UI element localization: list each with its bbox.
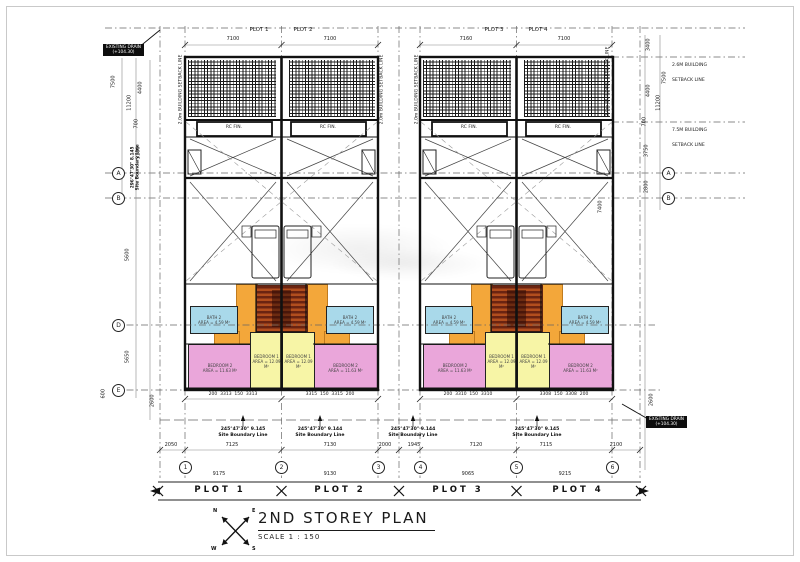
- roof-trellis-hatch: [423, 60, 511, 117]
- room-area: AREA = 11.63 M²: [563, 368, 597, 373]
- dim-left: 7500: [111, 62, 117, 102]
- grid-bubble-3: 3: [372, 461, 385, 474]
- compass-w: W: [211, 546, 217, 552]
- room-bedroom1: BEDROOM 1 AREA = 12.09 M²: [485, 332, 518, 391]
- setback-line-label-mid-right: 2.0m BUILDING SETBACK LINE: [415, 35, 420, 145]
- bubble-text: 6: [611, 464, 615, 471]
- rc-fin-label: RC FIN.: [308, 126, 348, 131]
- dim-left: 600: [101, 374, 107, 414]
- dim-left: 2600: [150, 381, 156, 421]
- grid-bubble-A-right: A: [662, 167, 675, 180]
- dim-row2: 2050: [154, 443, 188, 449]
- room-area: AREA = 11.63 M²: [203, 368, 237, 373]
- dim-left: 5650: [125, 337, 131, 377]
- room-bath2: BATH 2 AREA = 4.59 M²: [425, 306, 473, 334]
- dim-row2: 7120: [459, 443, 493, 449]
- dim-sub-plot2: 3315 150 3315 200: [282, 393, 378, 398]
- drain-label-chip: EXISTING DRAIN (+104.30): [103, 44, 144, 56]
- plot-bar-label-2: PLOT 2: [300, 485, 380, 495]
- compass-e: E: [252, 508, 255, 514]
- grid-bubble-1: 1: [179, 461, 192, 474]
- room-bedroom2: BEDROOM 2 AREA = 11.63 M²: [423, 344, 487, 391]
- bearing-plot4: 245°47'30" 9.145 Site Boundary Line: [505, 427, 569, 439]
- bearing-left-boundary: 296°47'30" 8.145 Site Boundary Line: [131, 132, 142, 202]
- compass-n: N: [213, 508, 217, 514]
- bearing-l2: Site Boundary Line: [505, 433, 569, 439]
- bubble-text: A: [666, 170, 670, 177]
- dim-right: 3400: [646, 25, 652, 65]
- bearing-plot1: 245°47'30" 9.145 Site Boundary Line: [211, 427, 275, 439]
- dim-row3: 9175: [199, 472, 239, 478]
- room-area: AREA = 4.59 M²: [569, 320, 601, 325]
- dim-row2: 7125: [215, 443, 249, 449]
- plot-bar-label-3: PLOT 3: [418, 485, 498, 495]
- plot-label-top-1: PLOT 1: [239, 27, 279, 33]
- dim-right: 3750: [644, 131, 650, 171]
- roof-trellis-hatch: [289, 60, 375, 117]
- floor-plan-sheet: BATH 2 AREA = 4.59 M² BATH 2 AREA = 4.59…: [0, 0, 800, 562]
- bearing-plot3: 245°47'30" 9.144 Site Boundary Line: [381, 427, 445, 439]
- room-bedroom1: BEDROOM 1 AREA = 12.09 M²: [517, 332, 550, 391]
- room-bath2: BATH 2 AREA = 4.59 M²: [190, 306, 238, 334]
- bubble-text: B: [666, 195, 670, 202]
- dim-top-plot2: 7100: [310, 37, 350, 43]
- grid-bubble-4: 4: [414, 461, 427, 474]
- plot-label-top-4: PLOT 4: [518, 27, 558, 33]
- bubble-text: E: [117, 387, 121, 394]
- bubble-text: A: [116, 170, 120, 177]
- dim-right: 2800: [644, 167, 650, 207]
- room-area: AREA = 4.59 M²: [198, 320, 230, 325]
- room-area: AREA = 12.09 M²: [251, 359, 282, 369]
- setback-l2: SETBACK LINE: [672, 143, 720, 148]
- bubble-text: 4: [419, 464, 423, 471]
- drawing-scale: SCALE 1 : 150: [258, 533, 320, 541]
- bubble-text: 3: [377, 464, 381, 471]
- dim-right: 7500: [662, 58, 668, 98]
- dim-row2: 7130: [313, 443, 347, 449]
- room-area: AREA = 12.09 M²: [486, 359, 517, 369]
- staircase-shadow: [272, 290, 291, 327]
- chip-line2: (+104.30): [649, 422, 684, 427]
- room-bath2: BATH 2 AREA = 4.59 M²: [326, 306, 374, 334]
- dim-right: 11200: [656, 83, 662, 123]
- dim-row2: 7115: [529, 443, 563, 449]
- bearing-l2: Site Boundary Line: [288, 433, 352, 439]
- roof-trellis-hatch: [524, 60, 610, 117]
- room-area: AREA = 4.59 M²: [334, 320, 366, 325]
- staircase-shadow: [507, 290, 526, 327]
- drawing-title: 2ND STOREY PLAN: [258, 509, 435, 531]
- rc-fin-label: RC FIN.: [214, 126, 254, 131]
- grid-bubble-B: B: [112, 192, 125, 205]
- dim-row3: 9065: [448, 472, 488, 478]
- room-area: AREA = 11.63 M²: [438, 368, 472, 373]
- bubble-text: D: [116, 322, 121, 329]
- room-bath2: BATH 2 AREA = 4.59 M²: [561, 306, 609, 334]
- bearing-l2: Site Boundary Line: [136, 132, 141, 202]
- chip-line2: (+104.30): [106, 50, 141, 55]
- setback-line-label-left: 2.0m BUILDING SETBACK LINE: [179, 35, 184, 145]
- room-bedroom2: BEDROOM 2 AREA = 11.63 M²: [313, 344, 378, 391]
- setback-line-label-right: 2.0m BUILDING SETBACK LINE: [606, 27, 611, 137]
- grid-bubble-B-right: B: [662, 192, 675, 205]
- plot-bar-label-4: PLOT 4: [538, 485, 618, 495]
- dim-top-plot1: 7100: [213, 37, 253, 43]
- setback-label-7-5m: 7.5M BUILDING SETBACK LINE: [672, 118, 720, 158]
- bubble-text: 1: [184, 464, 188, 471]
- room-area: AREA = 12.09 M²: [518, 359, 549, 369]
- setback-l2: SETBACK LINE: [672, 78, 720, 83]
- dim-left: 4400: [138, 68, 144, 108]
- room-bedroom2: BEDROOM 2 AREA = 11.63 M²: [548, 344, 613, 391]
- dim-row3: 9215: [545, 472, 585, 478]
- setback-line-label-mid-left: 2.0m BUILDING SETBACK LINE: [380, 35, 385, 145]
- setback-l1: 2.6M BUILDING: [672, 63, 720, 68]
- plot-label-top-3: PLOT 3: [474, 27, 514, 33]
- room-bedroom1: BEDROOM 1 AREA = 12.09 M²: [250, 332, 283, 391]
- roof-trellis-hatch: [188, 60, 276, 117]
- plot-bar-label-1: PLOT 1: [180, 485, 260, 495]
- dim-row3: 9130: [310, 472, 350, 478]
- setback-label-2-6m: 2.6M BUILDING SETBACK LINE: [672, 53, 720, 93]
- grid-bubble-5: 5: [510, 461, 523, 474]
- setback-l1: 7.5M BUILDING: [672, 128, 720, 133]
- dim-top-plot4: 7100: [544, 37, 584, 43]
- room-area: AREA = 11.63 M²: [328, 368, 362, 373]
- rc-fin-label: RC FIN.: [543, 126, 583, 131]
- compass-s: S: [252, 546, 256, 552]
- watermark: [330, 248, 490, 280]
- grid-bubble-2: 2: [275, 461, 288, 474]
- dim-top-plot3: 7160: [446, 37, 486, 43]
- dim-right: 7400: [598, 187, 604, 227]
- dim-row2: 2100: [599, 443, 633, 449]
- dim-sub-plot4: 3308 150 3308 200: [516, 393, 612, 398]
- bubble-text: 5: [515, 464, 519, 471]
- grid-bubble-E: E: [112, 384, 125, 397]
- dim-right: 2600: [649, 380, 655, 420]
- room-bedroom1: BEDROOM 1 AREA = 12.09 M²: [282, 332, 315, 391]
- grid-bubble-A: A: [112, 167, 125, 180]
- dim-left: 11200: [127, 83, 133, 123]
- dim-sub-plot3: 200 3310 150 3310: [420, 393, 516, 398]
- dim-left: 5600: [125, 235, 131, 275]
- grid-bubble-6: 6: [606, 461, 619, 474]
- bubble-text: B: [116, 195, 120, 202]
- bearing-plot2: 245°47'30" 9.144 Site Boundary Line: [288, 427, 352, 439]
- dim-row2: 1945: [397, 443, 431, 449]
- bubble-text: 2: [280, 464, 284, 471]
- room-bedroom2: BEDROOM 2 AREA = 11.63 M²: [188, 344, 252, 391]
- grid-bubble-D: D: [112, 319, 125, 332]
- bearing-l2: Site Boundary Line: [211, 433, 275, 439]
- room-area: AREA = 4.59 M²: [433, 320, 465, 325]
- dim-sub-plot1: 200 3313 150 3313: [185, 393, 281, 398]
- bearing-l2: Site Boundary Line: [381, 433, 445, 439]
- rc-fin-label: RC FIN.: [449, 126, 489, 131]
- plot-label-top-2: PLOT 2: [283, 27, 323, 33]
- room-area: AREA = 12.09 M²: [283, 359, 314, 369]
